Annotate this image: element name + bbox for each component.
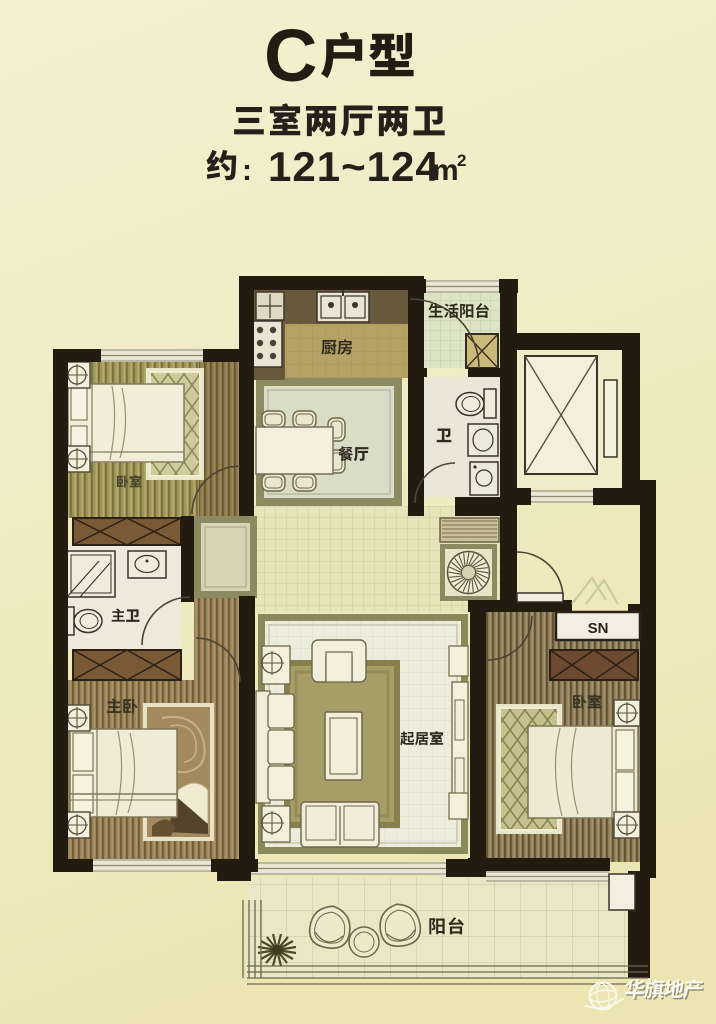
svg-text:2: 2 xyxy=(457,151,466,170)
svg-text:C: C xyxy=(264,14,317,97)
svg-text:121~124: 121~124 xyxy=(268,143,440,190)
svg-text:SN: SN xyxy=(588,620,609,637)
svg-text:m: m xyxy=(432,154,459,187)
svg-text::: : xyxy=(242,154,252,187)
